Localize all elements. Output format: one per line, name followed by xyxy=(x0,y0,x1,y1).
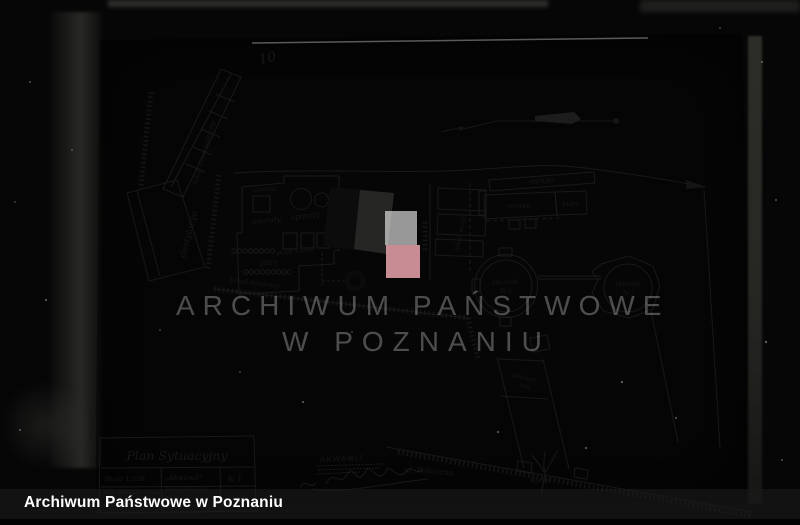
filter-barrel-row-1 xyxy=(232,249,275,253)
building-rented-premises: lokal dzierżawiony xyxy=(141,69,241,197)
label-cooperage-2: nia xyxy=(520,381,532,391)
label-ramp-lower: rampa xyxy=(506,200,531,210)
watermark-text-line1: ARCHIWUM PAŃSTWOWE xyxy=(176,290,669,322)
title-block-scale: Skala 1:250 xyxy=(104,475,145,483)
page-number: 10 xyxy=(258,49,279,68)
label-distillery: destylacya xyxy=(178,210,200,259)
label-tank1-name: zbiornik xyxy=(491,279,518,287)
title-block-no: № 1 xyxy=(226,475,242,484)
boundary-arrowhead xyxy=(686,180,707,189)
label-rented-premises: lokal dzierżawiony xyxy=(191,119,217,186)
title-block-company1: „Akwawit” xyxy=(165,474,203,482)
survey-arrow-icon xyxy=(441,112,619,132)
ramp-office-area: rampa rampa bióro xyxy=(479,172,595,229)
watermark-square-pink xyxy=(386,245,420,278)
footer-caption: Archiwum Państwowe w Poznaniu xyxy=(24,494,283,512)
plan-drawing: 10 lokal dzierżawiony destylacya laborat… xyxy=(0,0,800,525)
building-distillery: destylacya xyxy=(127,175,219,281)
label-filters: filtry xyxy=(259,257,279,268)
photo-bottom-edge xyxy=(0,519,800,525)
label-apparatus-lower: aparaty xyxy=(251,214,281,226)
watermark-square-white xyxy=(385,211,417,245)
label-tank2-name: zbiornik xyxy=(614,281,641,288)
well-ring xyxy=(347,273,363,289)
archival-photo-viewer: 10 lokal dzierżawiony destylacya laborat… xyxy=(0,0,800,525)
label-ramp-upper: rampa xyxy=(529,175,554,186)
label-entrance: wjazd xyxy=(530,476,551,485)
footer-caption-bar: Archiwum Państwowe w Poznaniu xyxy=(0,489,800,519)
label-scale-house: lokal wagi xyxy=(453,215,467,252)
akwawit-stamp: AKWAWIT xyxy=(320,453,365,464)
watermark-text-line2: W POZNANIU xyxy=(282,326,551,358)
sheet-top-fold-highlight xyxy=(252,38,648,43)
building-scale-house: lokal wagi xyxy=(425,183,486,280)
label-office: bióro xyxy=(562,200,580,209)
filter-barrel-row-2 xyxy=(244,270,292,274)
stamp-and-signature: AKWAWIT ul. Północna xyxy=(300,453,454,490)
label-sewer-channel: kanał ściekowy xyxy=(230,276,281,290)
building-cooperage: bednar- nia xyxy=(497,357,569,469)
title-block-title: Plan Sytuacyjny xyxy=(125,448,228,463)
label-street-name: ul. Północna xyxy=(404,465,454,477)
label-laboratory: laborat. xyxy=(253,184,279,194)
label-spirit-store: skład wódek xyxy=(276,246,315,257)
label-apparatus-upper: aparaty xyxy=(290,209,321,222)
building-black-roof xyxy=(323,187,394,254)
